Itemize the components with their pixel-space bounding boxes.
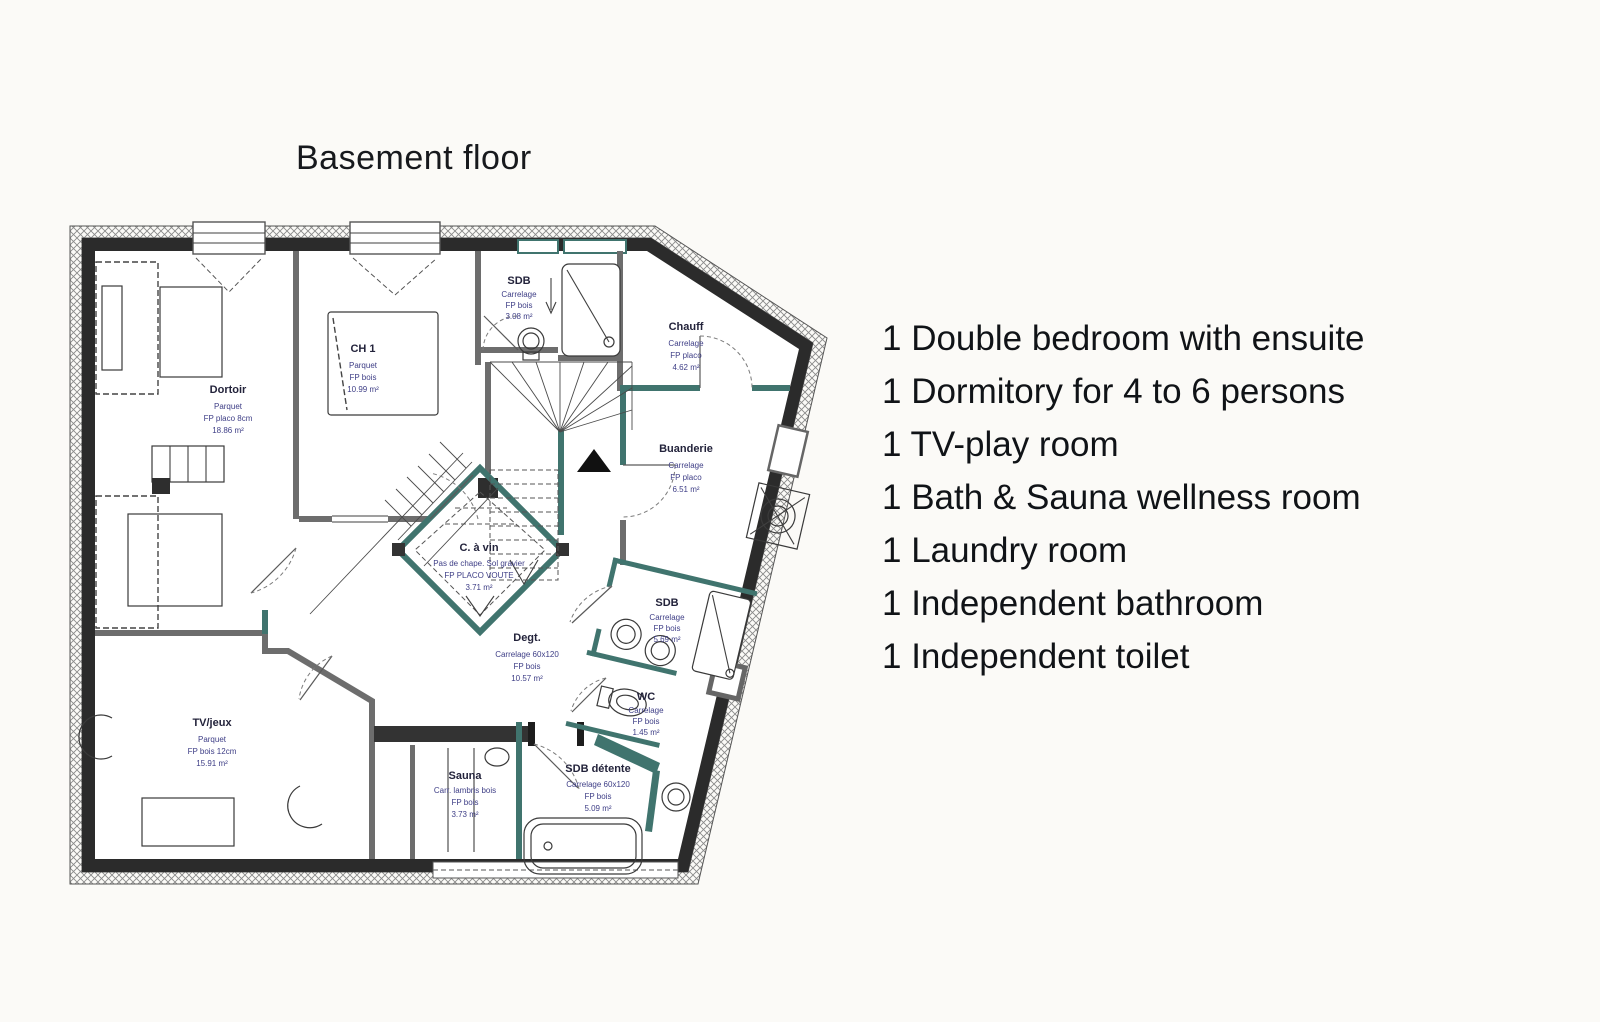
svg-text:10.57 m²: 10.57 m² xyxy=(511,674,543,683)
svg-text:FP bois: FP bois xyxy=(506,301,533,310)
svg-text:5.09 m²: 5.09 m² xyxy=(584,804,611,813)
svg-text:Buanderie: Buanderie xyxy=(659,443,713,455)
svg-text:Carrelage: Carrelage xyxy=(668,339,704,348)
svg-text:FP bois: FP bois xyxy=(514,662,541,671)
svg-text:FP placo: FP placo xyxy=(670,473,702,482)
svg-text:Carrelage: Carrelage xyxy=(668,461,704,470)
svg-text:SDB: SDB xyxy=(507,275,530,287)
svg-text:Degt.: Degt. xyxy=(513,632,541,644)
svg-text:10.99 m²: 10.99 m² xyxy=(347,385,379,394)
svg-text:4.62 m²: 4.62 m² xyxy=(672,363,699,372)
svg-text:Carrelage 60x120: Carrelage 60x120 xyxy=(495,650,559,659)
svg-text:Chauff: Chauff xyxy=(669,321,704,333)
svg-text:SDB: SDB xyxy=(655,597,678,609)
svg-text:FP bois: FP bois xyxy=(452,798,479,807)
svg-text:18.86 m²: 18.86 m² xyxy=(212,426,244,435)
svg-text:FP placo 8cm: FP placo 8cm xyxy=(204,414,253,423)
svg-text:FP bois: FP bois xyxy=(654,624,681,633)
svg-text:Parquet: Parquet xyxy=(349,361,378,370)
svg-text:WC: WC xyxy=(637,691,655,703)
shower xyxy=(562,264,620,356)
svg-text:Dortoir: Dortoir xyxy=(210,384,247,396)
window xyxy=(518,240,626,253)
floor-plan: Dortoir Parquet FP placo 8cm 18.86 m² CH… xyxy=(0,0,1600,1022)
svg-text:1.45 m²: 1.45 m² xyxy=(632,728,659,737)
svg-text:FP bois: FP bois xyxy=(633,717,660,726)
svg-text:3.73 m²: 3.73 m² xyxy=(451,810,478,819)
svg-text:CH 1: CH 1 xyxy=(350,343,375,355)
svg-text:C. à vin: C. à vin xyxy=(459,542,498,554)
svg-text:15.91 m²: 15.91 m² xyxy=(196,759,228,768)
svg-text:Pas de chape. Sol gravier: Pas de chape. Sol gravier xyxy=(433,559,525,568)
svg-text:Carr. lambris bois: Carr. lambris bois xyxy=(434,786,496,795)
svg-text:Carrelage 60x120: Carrelage 60x120 xyxy=(566,780,630,789)
page: Basement floor 1 Double bedroom with ens… xyxy=(0,0,1600,1022)
svg-text:5.69 m²: 5.69 m² xyxy=(653,635,680,644)
svg-text:FP bois 12cm: FP bois 12cm xyxy=(188,747,237,756)
svg-text:Carrelage: Carrelage xyxy=(649,613,685,622)
svg-text:Carrelage: Carrelage xyxy=(628,706,664,715)
room-label-ch1: CH 1 Parquet FP bois 10.99 m² xyxy=(347,343,379,394)
room-label-chauff: Chauff Carrelage FP placo 4.62 m² xyxy=(668,321,704,372)
svg-text:TV/jeux: TV/jeux xyxy=(192,717,232,729)
svg-text:Carrelage: Carrelage xyxy=(501,290,537,299)
svg-text:3.71 m²: 3.71 m² xyxy=(465,583,492,592)
svg-text:FP PLACO VOUTE: FP PLACO VOUTE xyxy=(444,571,513,580)
svg-text:FP bois: FP bois xyxy=(585,792,612,801)
svg-text:Parquet: Parquet xyxy=(214,402,243,411)
svg-text:FP bois: FP bois xyxy=(350,373,377,382)
svg-text:Parquet: Parquet xyxy=(198,735,227,744)
svg-text:3.08 m²: 3.08 m² xyxy=(505,312,532,321)
svg-text:Sauna: Sauna xyxy=(448,770,482,782)
svg-text:SDB détente: SDB détente xyxy=(565,763,630,775)
svg-text:FP placo: FP placo xyxy=(670,351,702,360)
svg-text:6.51 m²: 6.51 m² xyxy=(672,485,699,494)
